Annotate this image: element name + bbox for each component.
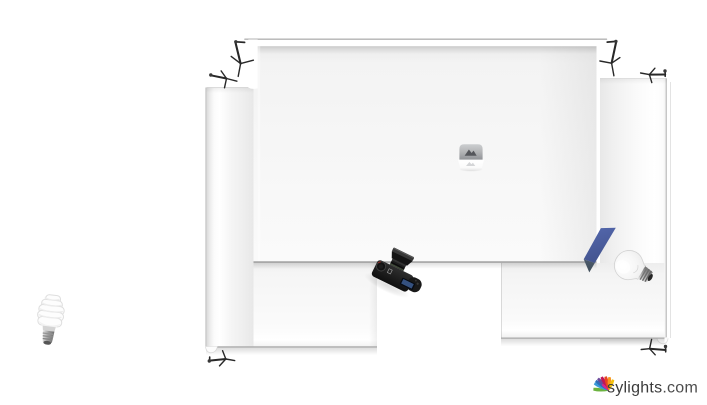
svg-text:sylights.com: sylights.com [607,380,698,397]
